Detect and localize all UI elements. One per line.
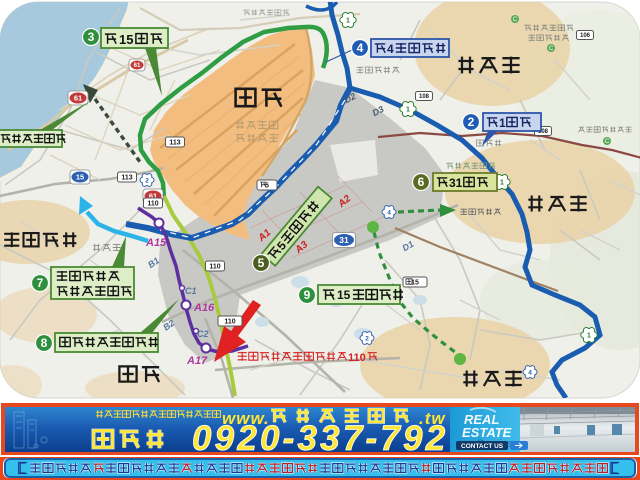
svg-text:7: 7 <box>37 276 44 290</box>
svg-text:4: 4 <box>387 209 391 216</box>
svg-text:1: 1 <box>587 333 591 340</box>
svg-text:61: 61 <box>134 63 141 69</box>
svg-text:1: 1 <box>499 116 506 130</box>
svg-text:A15: A15 <box>145 237 167 249</box>
svg-text:110: 110 <box>348 352 366 364</box>
svg-text:15: 15 <box>76 173 84 182</box>
svg-text:113: 113 <box>169 140 180 147</box>
svg-text:4: 4 <box>387 42 394 56</box>
svg-text:3: 3 <box>88 30 95 44</box>
svg-text:113: 113 <box>121 175 132 182</box>
svg-text:31: 31 <box>449 176 463 190</box>
svg-text:C: C <box>513 17 518 23</box>
svg-text:5: 5 <box>258 256 265 270</box>
svg-text:1: 1 <box>500 180 504 187</box>
svg-text:4: 4 <box>528 369 532 376</box>
svg-text:2: 2 <box>145 177 149 184</box>
svg-text:C: C <box>605 139 610 145</box>
svg-text:1: 1 <box>406 107 410 114</box>
svg-text:15: 15 <box>337 288 351 302</box>
svg-text:108: 108 <box>419 94 430 100</box>
svg-text:6: 6 <box>418 175 425 189</box>
svg-text:2: 2 <box>365 335 369 342</box>
svg-text:C1: C1 <box>185 286 197 296</box>
svg-text:9: 9 <box>304 288 311 302</box>
svg-text:110: 110 <box>147 201 158 208</box>
svg-text:4: 4 <box>357 41 364 55</box>
svg-text:15: 15 <box>119 32 133 47</box>
svg-text:A17: A17 <box>186 355 208 367</box>
svg-text:110: 110 <box>209 264 220 271</box>
svg-text:C: C <box>549 46 554 52</box>
svg-text:8: 8 <box>41 336 48 350</box>
svg-text:110: 110 <box>224 319 235 326</box>
svg-text:2: 2 <box>468 115 475 129</box>
svg-text:0920-337-792: 0920-337-792 <box>192 419 448 458</box>
svg-text:61: 61 <box>74 94 82 103</box>
svg-text:CONTACT US: CONTACT US <box>461 443 504 450</box>
svg-text:A16: A16 <box>193 302 215 314</box>
svg-text:106: 106 <box>580 33 591 39</box>
svg-text:31: 31 <box>339 235 349 245</box>
svg-text:1: 1 <box>346 18 350 25</box>
svg-text:C2: C2 <box>197 329 209 339</box>
